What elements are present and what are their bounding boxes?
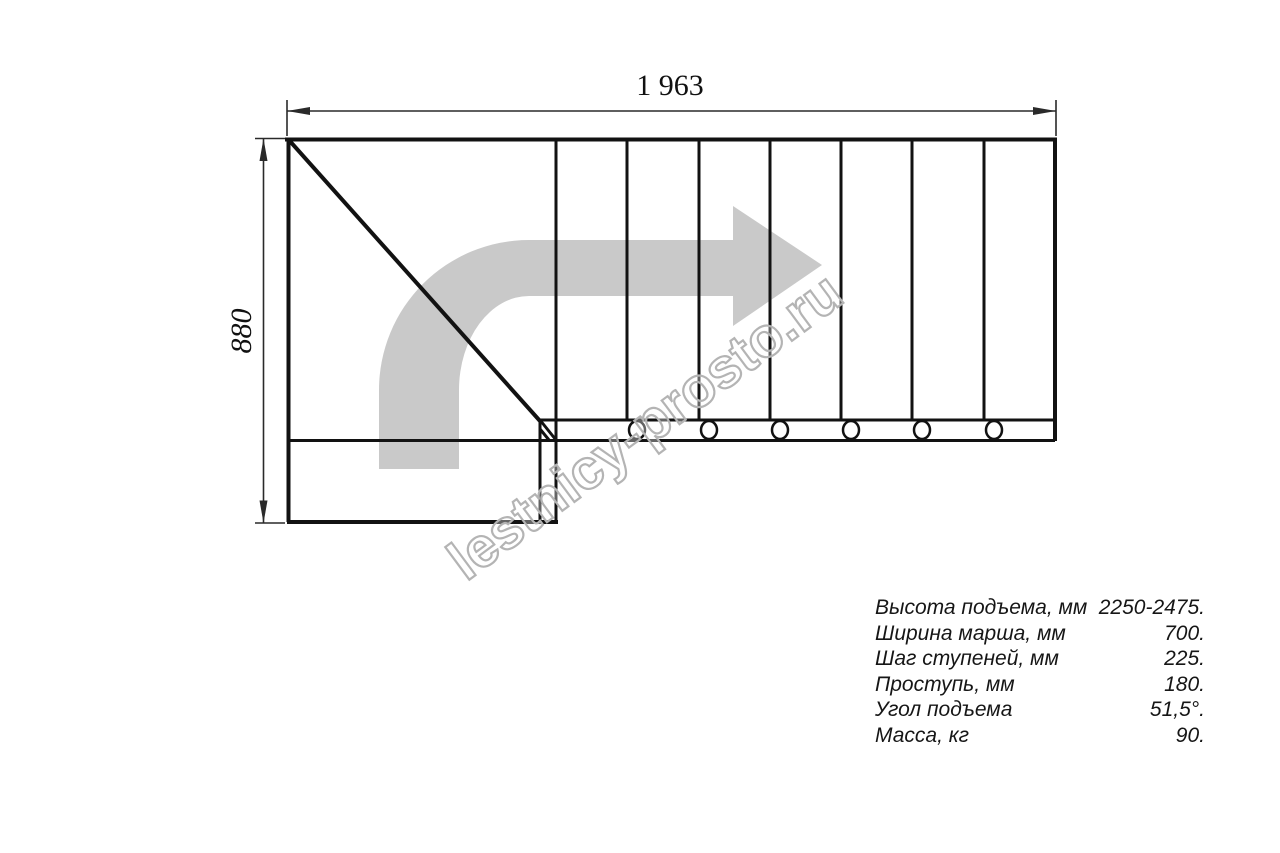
spec-label: Масса, кг	[875, 723, 969, 749]
fastener-circle	[843, 421, 859, 439]
spec-label: Угол подъема	[875, 697, 1012, 723]
direction-arrow-icon	[379, 206, 822, 469]
fastener-circle	[772, 421, 788, 439]
spec-row: Ширина марша, мм 700.	[875, 621, 1205, 647]
fastener-circle	[629, 421, 645, 439]
spec-label: Ширина марша, мм	[875, 621, 1066, 647]
fastener-circle	[914, 421, 930, 439]
spec-row: Шаг ступеней, мм 225.	[875, 646, 1205, 672]
height-dimension-label: 880	[224, 269, 260, 393]
dimension-width	[287, 100, 1056, 136]
spec-row: Масса, кг 90.	[875, 723, 1205, 749]
spec-label: Проступь, мм	[875, 672, 1015, 698]
fastener-circles	[629, 421, 1002, 439]
spec-value: 180.	[1164, 672, 1205, 698]
spec-label: Высота подъема, мм	[875, 595, 1087, 621]
stair-drawing-page: 1 963 880 lestnicy-prosto.ru Высота подъ…	[0, 0, 1280, 853]
width-dimension-label: 1 963	[590, 68, 750, 104]
spec-row: Высота подъема, мм 2250-2475.	[875, 595, 1205, 621]
specs-table: Высота подъема, мм 2250-2475. Ширина мар…	[875, 595, 1205, 748]
newel-post-hatch	[540, 420, 556, 440]
fastener-circle	[701, 421, 717, 439]
spec-value: 90.	[1176, 723, 1205, 749]
step-lines	[556, 138, 984, 522]
spec-value: 225.	[1164, 646, 1205, 672]
fastener-circle	[986, 421, 1002, 439]
spec-value: 2250-2475.	[1099, 595, 1205, 621]
spec-row: Проступь, мм 180.	[875, 672, 1205, 698]
spec-label: Шаг ступеней, мм	[875, 646, 1059, 672]
spec-value: 700.	[1164, 621, 1205, 647]
spec-row: Угол подъема 51,5°.	[875, 697, 1205, 723]
spec-value: 51,5°.	[1150, 697, 1205, 723]
